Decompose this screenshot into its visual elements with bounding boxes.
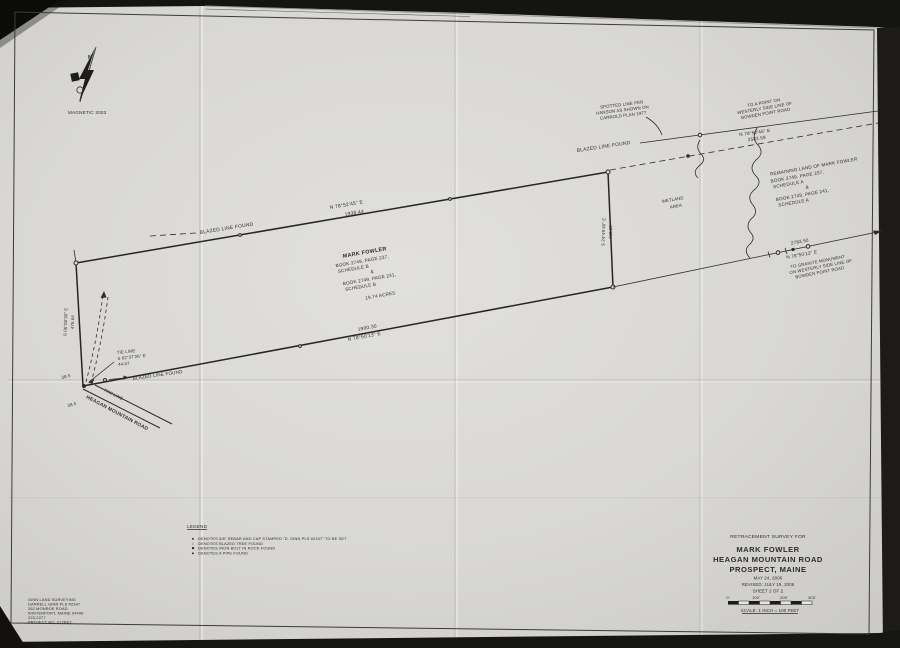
point-symbol [791, 248, 794, 251]
title-revised: REVISED: JULY 19, 2006 [742, 582, 795, 587]
surveyor-line: PROJECT NO. 012BE2 [28, 620, 72, 625]
blazed-tree-symbol [299, 345, 302, 348]
scanned-survey-plat: N MAGNETIC 2003 [0, 0, 900, 648]
left-bearing: S 06°00'30" E [63, 308, 69, 337]
title-owner: MARK FOWLER [736, 545, 799, 554]
title-sheet: SHEET 2 OF 2 [753, 589, 784, 594]
left-distance: 476.64 [70, 315, 76, 330]
scale-tick: 300' [808, 595, 816, 600]
point-symbol [698, 133, 702, 137]
scale-caption: SCALE: 1 INCH = 100 FEET [741, 608, 800, 613]
right-bearing: S 24°49'40" E [601, 218, 607, 247]
right-distance: 433.39 [608, 225, 614, 240]
nw-corner-monument [74, 261, 78, 265]
point-symbol [806, 245, 810, 249]
point-symbol [776, 251, 780, 255]
sw-corner-monument [82, 384, 86, 388]
blazed-tree-symbol [239, 234, 242, 237]
survey-drawing: N MAGNETIC 2003 [0, 0, 900, 648]
ne-corner-monument [606, 170, 610, 174]
scale-tick: 200' [780, 595, 788, 600]
legend-title: LEGEND [187, 524, 208, 529]
scale-tick: 100' [752, 595, 760, 600]
legend-item: DENOTES A PIPE FOUND [198, 550, 248, 555]
north-letter: N [88, 55, 92, 61]
magnetic-label: MAGNETIC 2003 [68, 110, 107, 115]
title-date: MAY 24, 2006 [754, 576, 783, 581]
title-town: PROSPECT, MAINE [729, 565, 806, 574]
title-subtitle: RETRACEMENT SURVEY FOR [730, 534, 806, 540]
blazed-tree-symbol [449, 198, 452, 201]
point-symbol [104, 379, 107, 382]
title-road: HEAGAN MOUNTAIN ROAD [713, 555, 823, 564]
legend-symbol: ● [192, 550, 195, 555]
point-symbol [686, 154, 690, 158]
scale-tick: 0' [726, 595, 729, 600]
